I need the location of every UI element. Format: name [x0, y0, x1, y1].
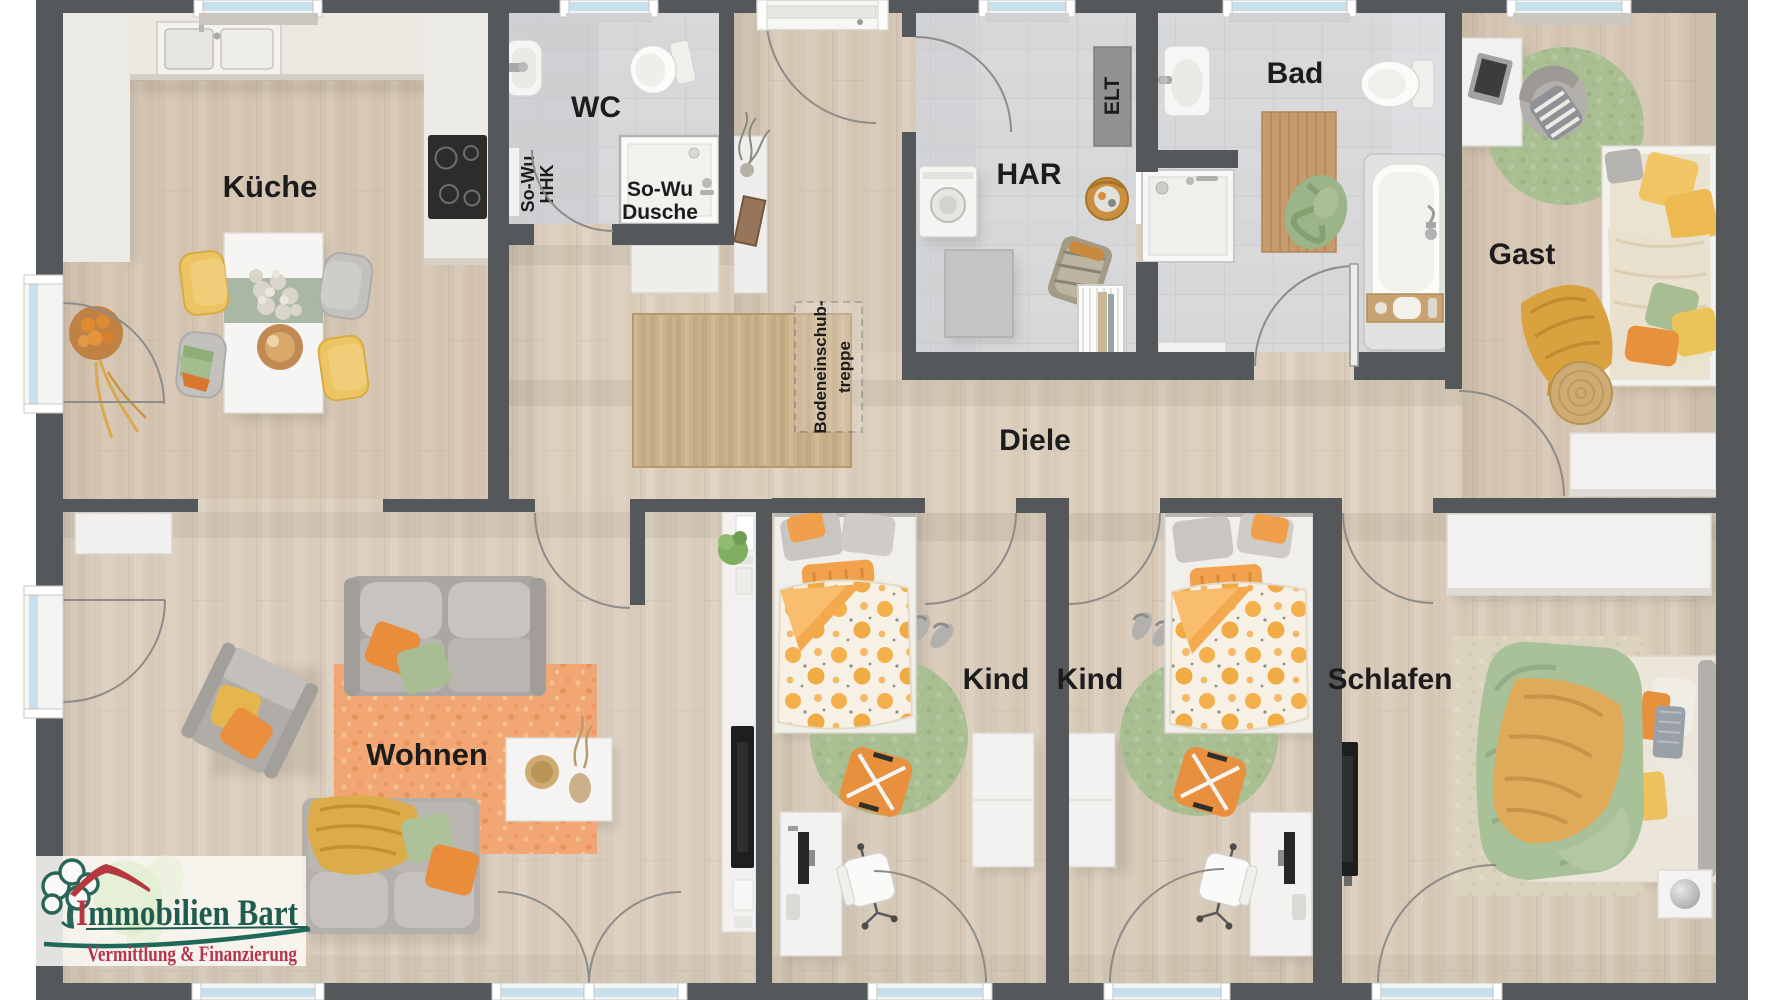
svg-text:Dusche: Dusche — [622, 201, 698, 224]
svg-text:WC: WC — [571, 91, 621, 124]
svg-text:Vermittlung & Finanzierung: Vermittlung & Finanzierung — [87, 941, 297, 966]
svg-text:treppe: treppe — [835, 341, 854, 393]
svg-text:Schlafen: Schlafen — [1327, 663, 1452, 696]
svg-text:Kind: Kind — [963, 663, 1030, 696]
svg-text:So-Wu: So-Wu — [518, 156, 538, 213]
svg-text:ELT: ELT — [1101, 77, 1124, 115]
svg-text:Wohnen: Wohnen — [366, 737, 488, 772]
svg-text:Kind: Kind — [1057, 663, 1124, 696]
svg-text:Gast: Gast — [1489, 238, 1556, 271]
svg-text:Bad: Bad — [1267, 57, 1324, 90]
svg-text:Diele: Diele — [999, 424, 1071, 457]
svg-text:Bodeneinschub-: Bodeneinschub- — [811, 300, 830, 433]
svg-text:Küche: Küche — [223, 169, 318, 204]
svg-text:So-Wu: So-Wu — [627, 178, 693, 201]
svg-text:HAR: HAR — [997, 158, 1062, 191]
